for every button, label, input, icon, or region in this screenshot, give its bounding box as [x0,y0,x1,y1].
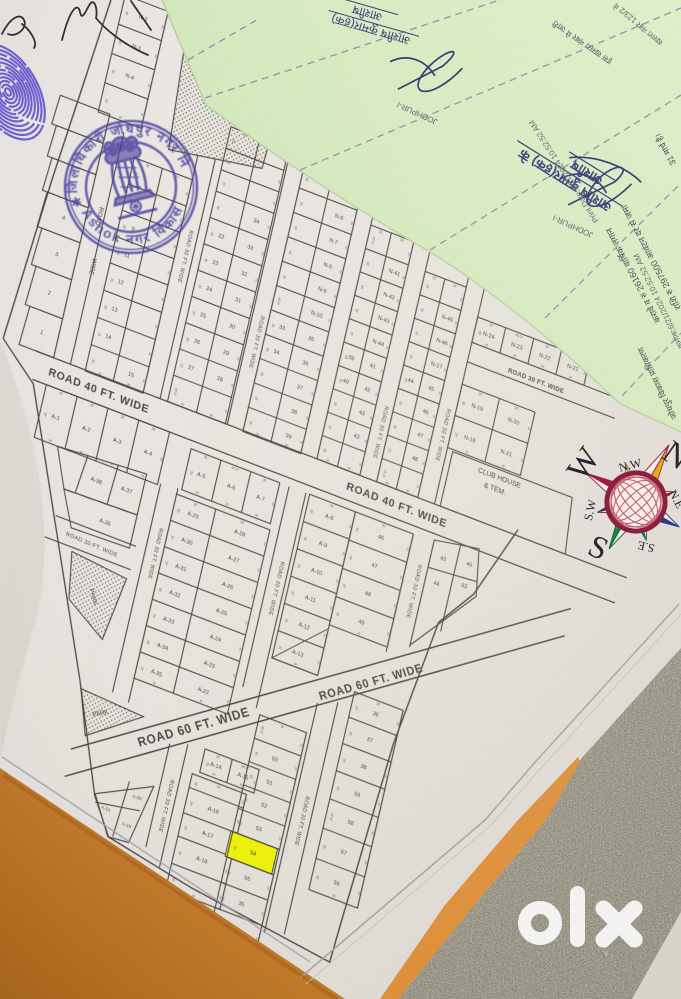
svg-text:v ,: v , [604,948,614,958]
